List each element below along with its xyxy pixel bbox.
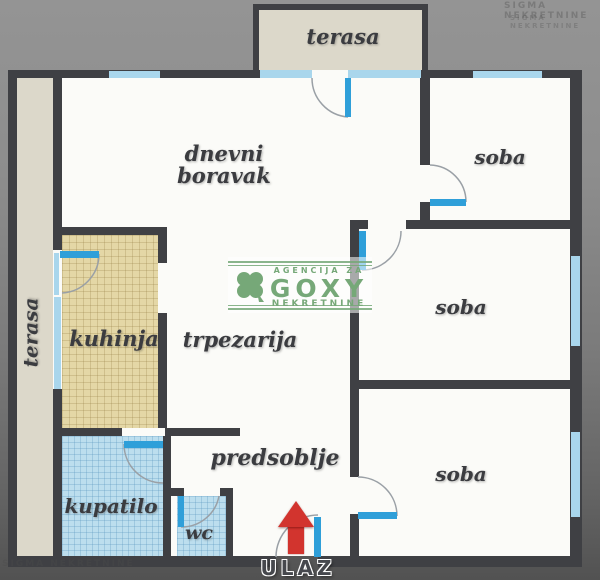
wall xyxy=(53,227,167,235)
room-label-terasa-top: terasa xyxy=(293,26,393,48)
room-label-kuhinja: kuhinja xyxy=(64,328,164,350)
wall xyxy=(158,227,167,263)
wall xyxy=(350,220,368,229)
wall xyxy=(171,488,184,496)
window xyxy=(54,253,59,295)
door-opening xyxy=(122,428,165,436)
wall xyxy=(53,78,62,250)
wall xyxy=(406,220,570,229)
room-label-wc: wc xyxy=(174,524,224,544)
floor-plan: SIGMA NEKRETNINE SIGMA NEKRETNINE terasa… xyxy=(0,0,600,580)
door-leaf xyxy=(124,441,163,448)
window xyxy=(571,432,580,517)
wall xyxy=(350,514,359,556)
wall xyxy=(53,389,62,556)
wall xyxy=(163,436,171,556)
room-label-predsoblje: predsoblje xyxy=(200,447,350,470)
door-leaf xyxy=(345,78,351,117)
wall xyxy=(420,202,430,229)
window xyxy=(473,71,542,78)
entrance-label: ULAZ xyxy=(248,556,348,580)
door-leaf xyxy=(358,512,397,519)
wall xyxy=(318,556,582,567)
window xyxy=(54,297,61,389)
wall xyxy=(420,78,430,165)
window xyxy=(109,71,160,78)
entrance-door-leaf xyxy=(314,517,321,557)
corner-watermark-top-right-2: SIGMA NEKRETNINE xyxy=(510,14,600,30)
wall xyxy=(226,488,233,556)
door-leaf xyxy=(430,199,466,206)
room-label-soba-top: soba xyxy=(460,147,540,168)
door-leaf xyxy=(60,251,99,258)
room-label-soba-bottom: soba xyxy=(421,464,501,485)
room-label-terasa-left: terasa xyxy=(21,293,42,373)
room-label-kupatilo: kupatilo xyxy=(61,496,161,517)
corner-watermark-bottom-left: SIGMA NEKRETNINE xyxy=(2,559,135,569)
room-label-dnevni-boravak: dnevni boravak xyxy=(163,143,285,187)
room-label-trpezarija: trpezarija xyxy=(165,329,315,351)
room-label-soba-middle: soba xyxy=(421,297,501,318)
wall xyxy=(8,70,17,567)
terrace-door-opening xyxy=(312,70,348,78)
wall xyxy=(350,380,570,389)
window xyxy=(571,256,580,346)
watermark-rule xyxy=(228,261,372,263)
door-leaf xyxy=(178,496,184,527)
entrance-arrow-icon xyxy=(288,525,304,554)
entrance-arrow-head-icon xyxy=(278,501,314,527)
agency-watermark-bottom-line: NEKRETNINE xyxy=(266,299,372,309)
